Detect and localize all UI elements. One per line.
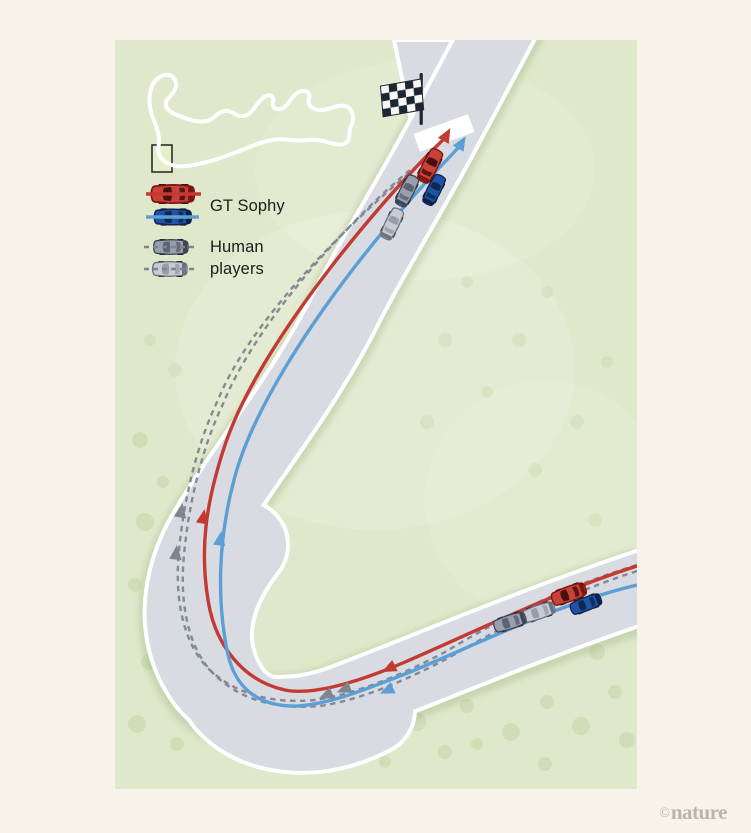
legend-label-gt-sophy: GT Sophy	[210, 196, 285, 218]
map-panel	[115, 40, 637, 789]
track-scene	[115, 40, 637, 789]
nature-brand: nature	[671, 800, 727, 824]
race-figure: GT Sophy Human players ©nature	[0, 0, 751, 833]
nature-watermark: ©nature	[659, 800, 727, 825]
copyright-icon: ©	[659, 806, 670, 821]
legend-label-human-players: Human players	[210, 237, 282, 280]
legend-lines	[144, 194, 201, 269]
